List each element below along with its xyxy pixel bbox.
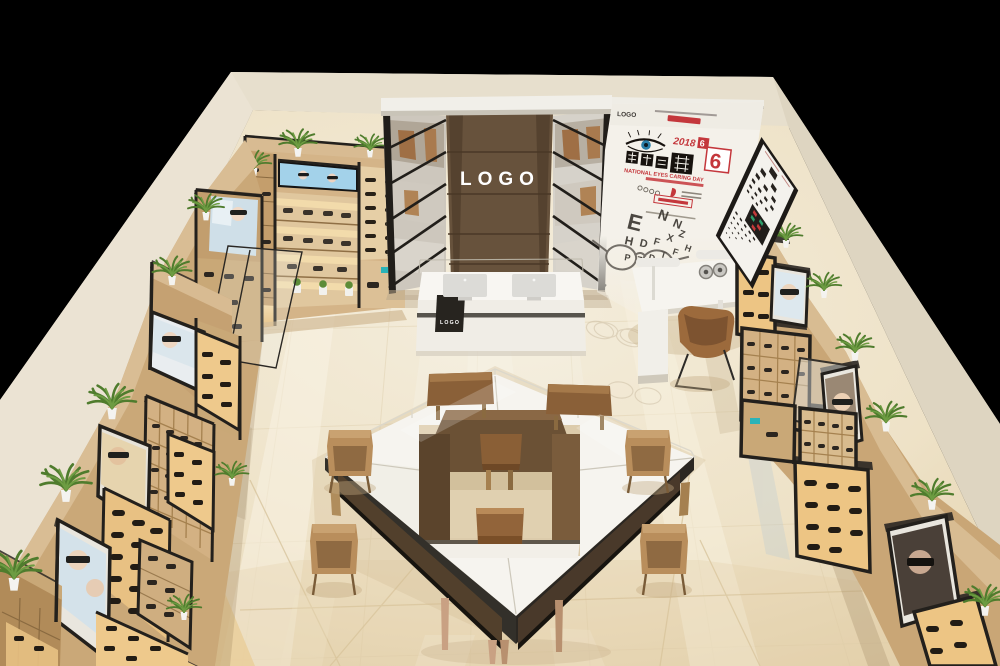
svg-text:LOGO: LOGO [617,111,636,119]
svg-text:LOGO: LOGO [440,320,460,326]
svg-text:LOGO: LOGO [460,169,540,190]
